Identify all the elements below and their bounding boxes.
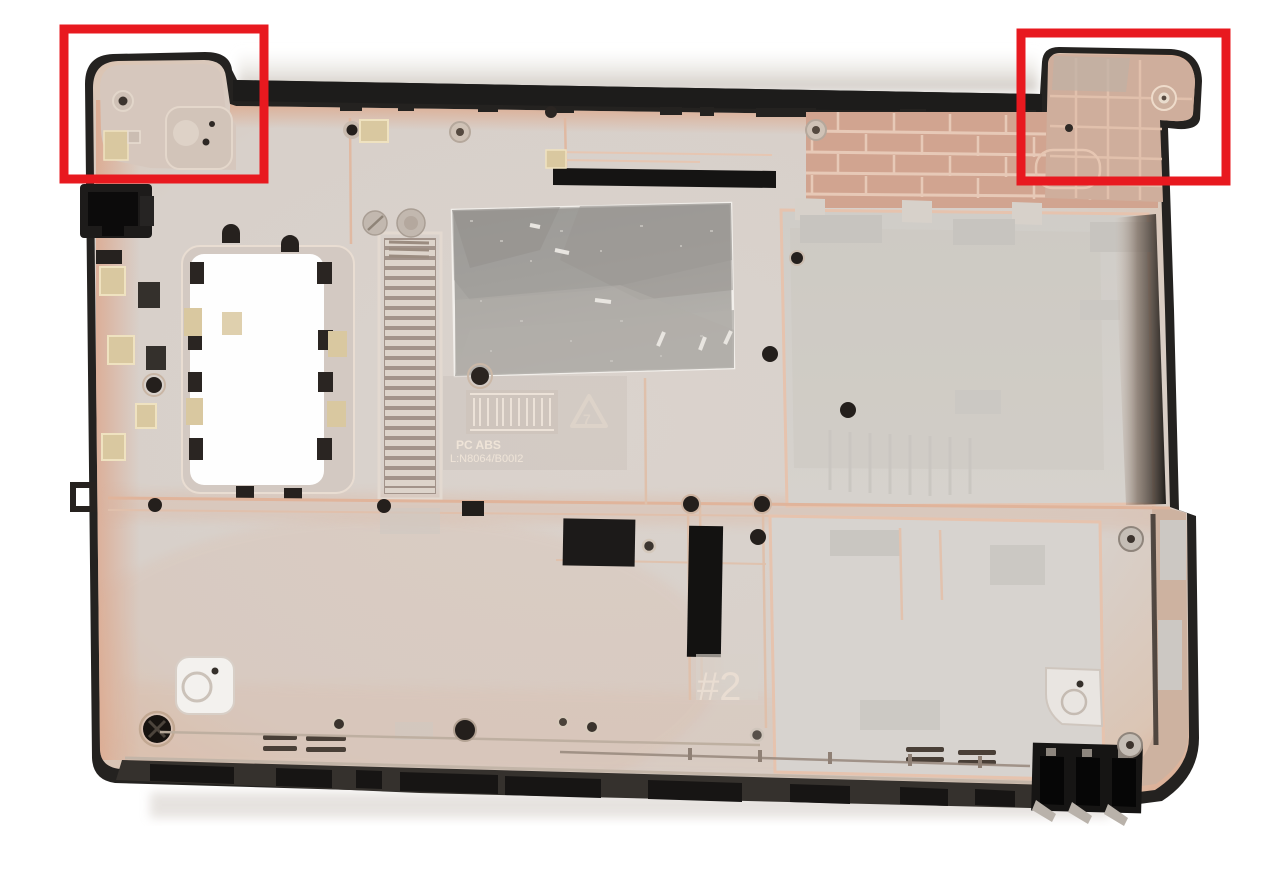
svg-text:7: 7: [583, 411, 591, 427]
svg-text:PC ABS: PC ABS: [456, 438, 501, 452]
svg-text:L:N8064/B00I2: L:N8064/B00I2: [450, 453, 523, 465]
svg-text:#2: #2: [697, 665, 742, 709]
